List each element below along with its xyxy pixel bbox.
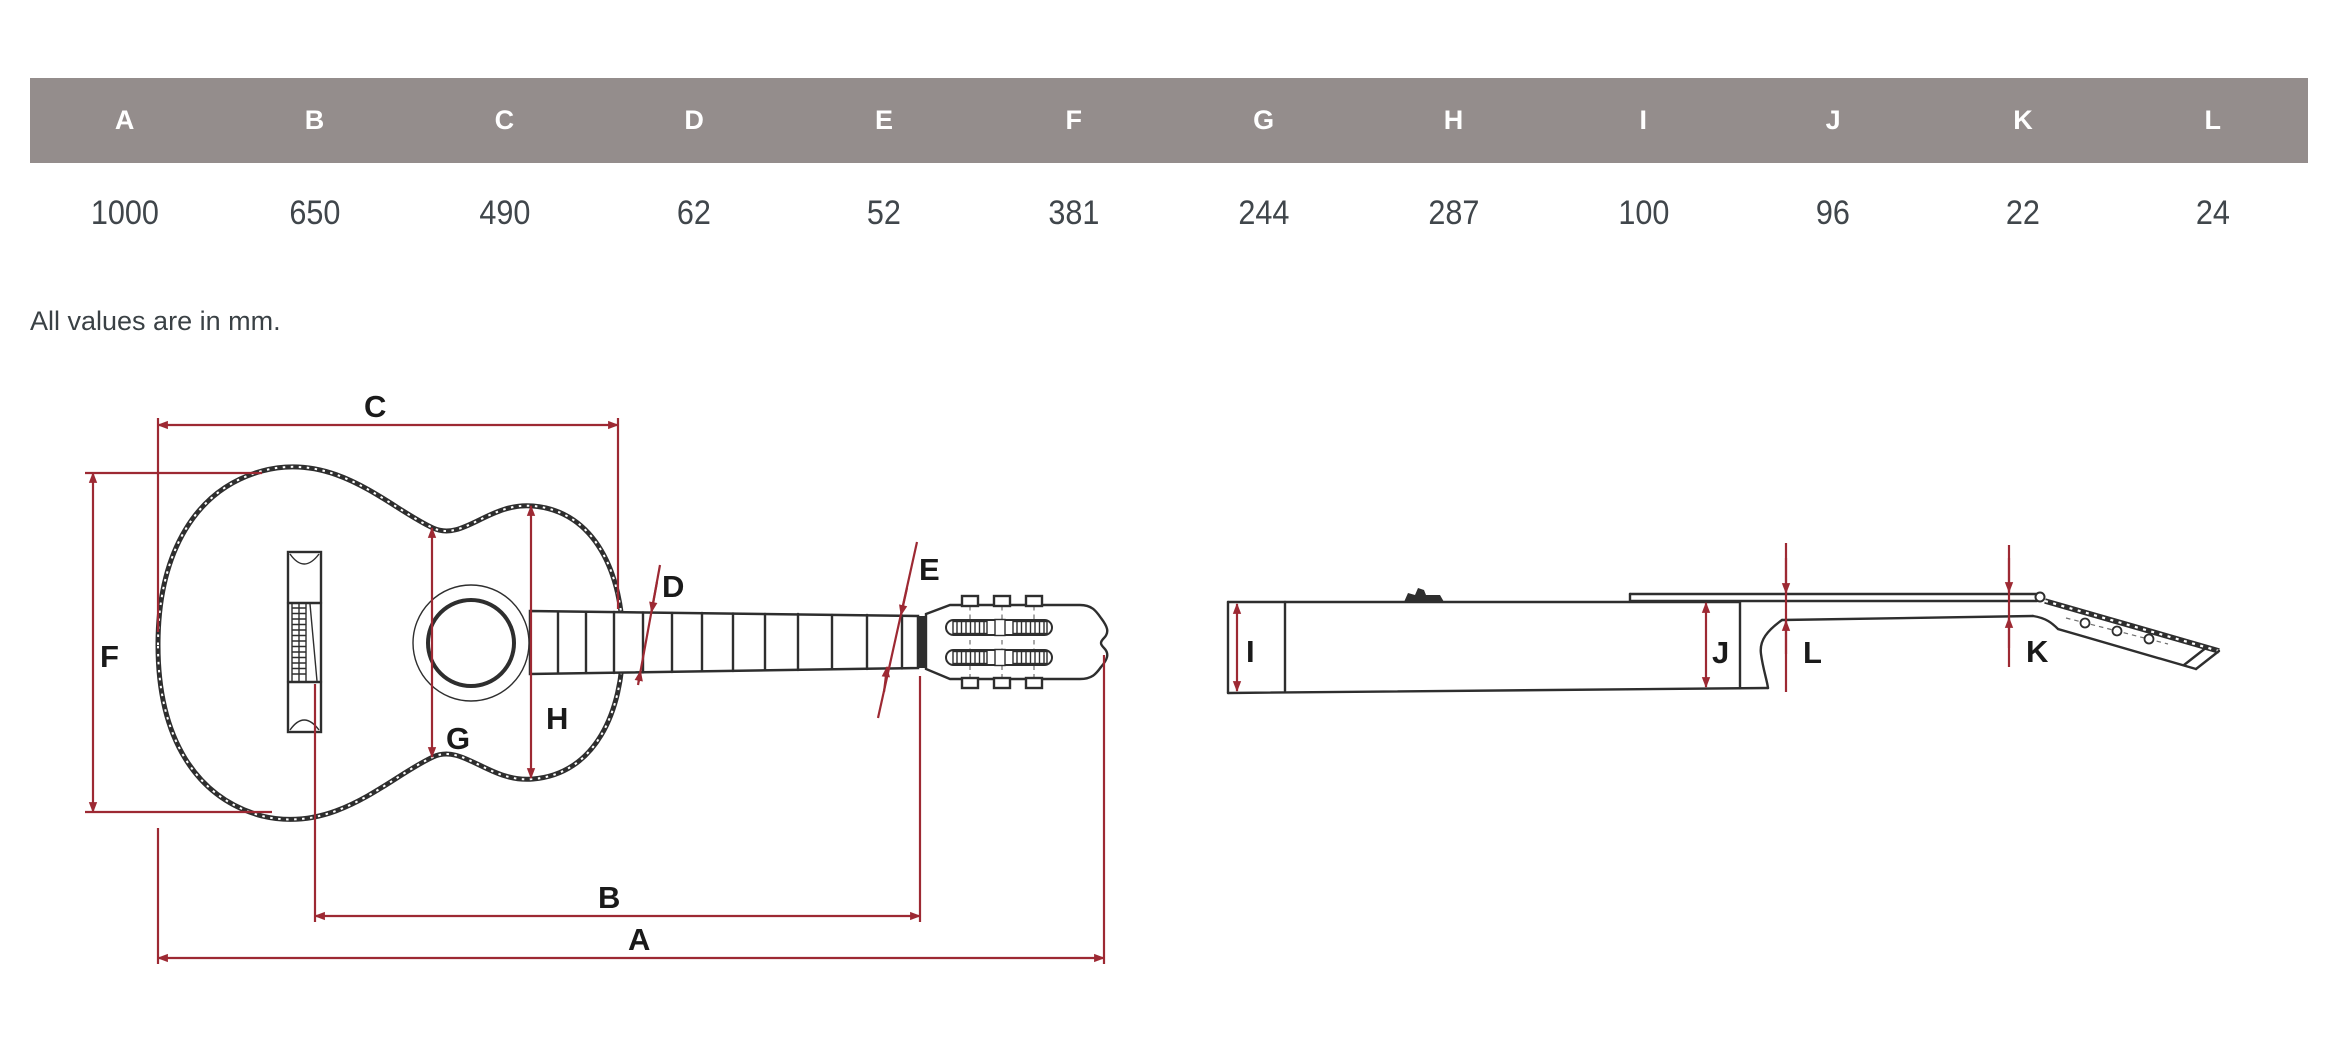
side-heel [1761,620,1782,688]
table-header-cell: E [789,78,979,163]
table-header-cell: K [1928,78,2118,163]
side-headstock [2045,601,2219,669]
table-header-cell: I [1549,78,1739,163]
dim-label-g: G [446,721,470,756]
side-body-bottom [1228,688,1768,693]
table-value-cell: 62 [609,163,780,263]
table-value-cell: 96 [1748,163,1919,263]
table-header-cell: B [220,78,410,163]
dim-label-i: I [1246,634,1255,669]
tuner-roller [953,620,1047,636]
table-value-cell: 244 [1178,163,1349,263]
fingerboard [530,611,926,674]
dim-label-j: J [1712,635,1729,670]
table-header-cell: J [1738,78,1928,163]
tuner-hole [2081,619,2090,628]
page: { "table": { "columns": [ {"label": "A",… [0,0,2334,1046]
side-fingerboard [1630,594,2037,601]
table-value-cell: 24 [2128,163,2299,263]
table-header-cell: H [1359,78,1549,163]
table-value-cell: 100 [1558,163,1729,263]
soundhole [413,585,529,701]
tuner-hole [2145,635,2154,644]
dimensions-table: A B C D E F G H I J K L 1000 650 490 62 … [30,78,2308,263]
side-bridge [1404,588,1444,602]
dim-label-c: C [364,389,386,424]
tuner-roller [953,650,1047,666]
table-value-cell: 381 [989,163,1160,263]
dim-label-a: A [628,922,650,957]
dim-label-h: H [546,701,568,736]
side-headstock-bottom [2033,616,2196,669]
side-neck-underside [1782,616,2033,620]
table-value-cell: 52 [799,163,970,263]
table-header-cell: G [1169,78,1359,163]
table-header-cell: L [2118,78,2308,163]
table-header-cell: D [599,78,789,163]
table-header-row: A B C D E F G H I J K L [30,78,2308,163]
side-nut [2036,593,2045,602]
table-value-cell: 650 [229,163,400,263]
table-value-row: 1000 650 490 62 52 381 244 287 100 96 22… [30,163,2308,263]
table-header-cell: C [410,78,600,163]
headstock-front [926,596,1107,688]
table-header-cell: F [979,78,1169,163]
table-value-cell: 490 [419,163,590,263]
dim-label-k: K [2026,634,2049,669]
dim-label-b: B [598,880,620,915]
table-value-cell: 287 [1368,163,1539,263]
dim-label-f: F [100,639,119,674]
guitar-dimensions-diagram: C F G H D E B A [0,380,2334,1046]
tuner-hole [2113,627,2122,636]
guitar-front-view [158,467,1107,820]
dim-label-e: E [919,552,940,587]
table-value-cell: 1000 [39,163,210,263]
dim-label-d: D [662,569,684,604]
table-value-cell: 22 [1938,163,2109,263]
table-header-cell: A [30,78,220,163]
headstock-outline [926,605,1107,679]
units-note: All values are in mm. [30,306,281,337]
dim-label-l: L [1803,635,1822,670]
